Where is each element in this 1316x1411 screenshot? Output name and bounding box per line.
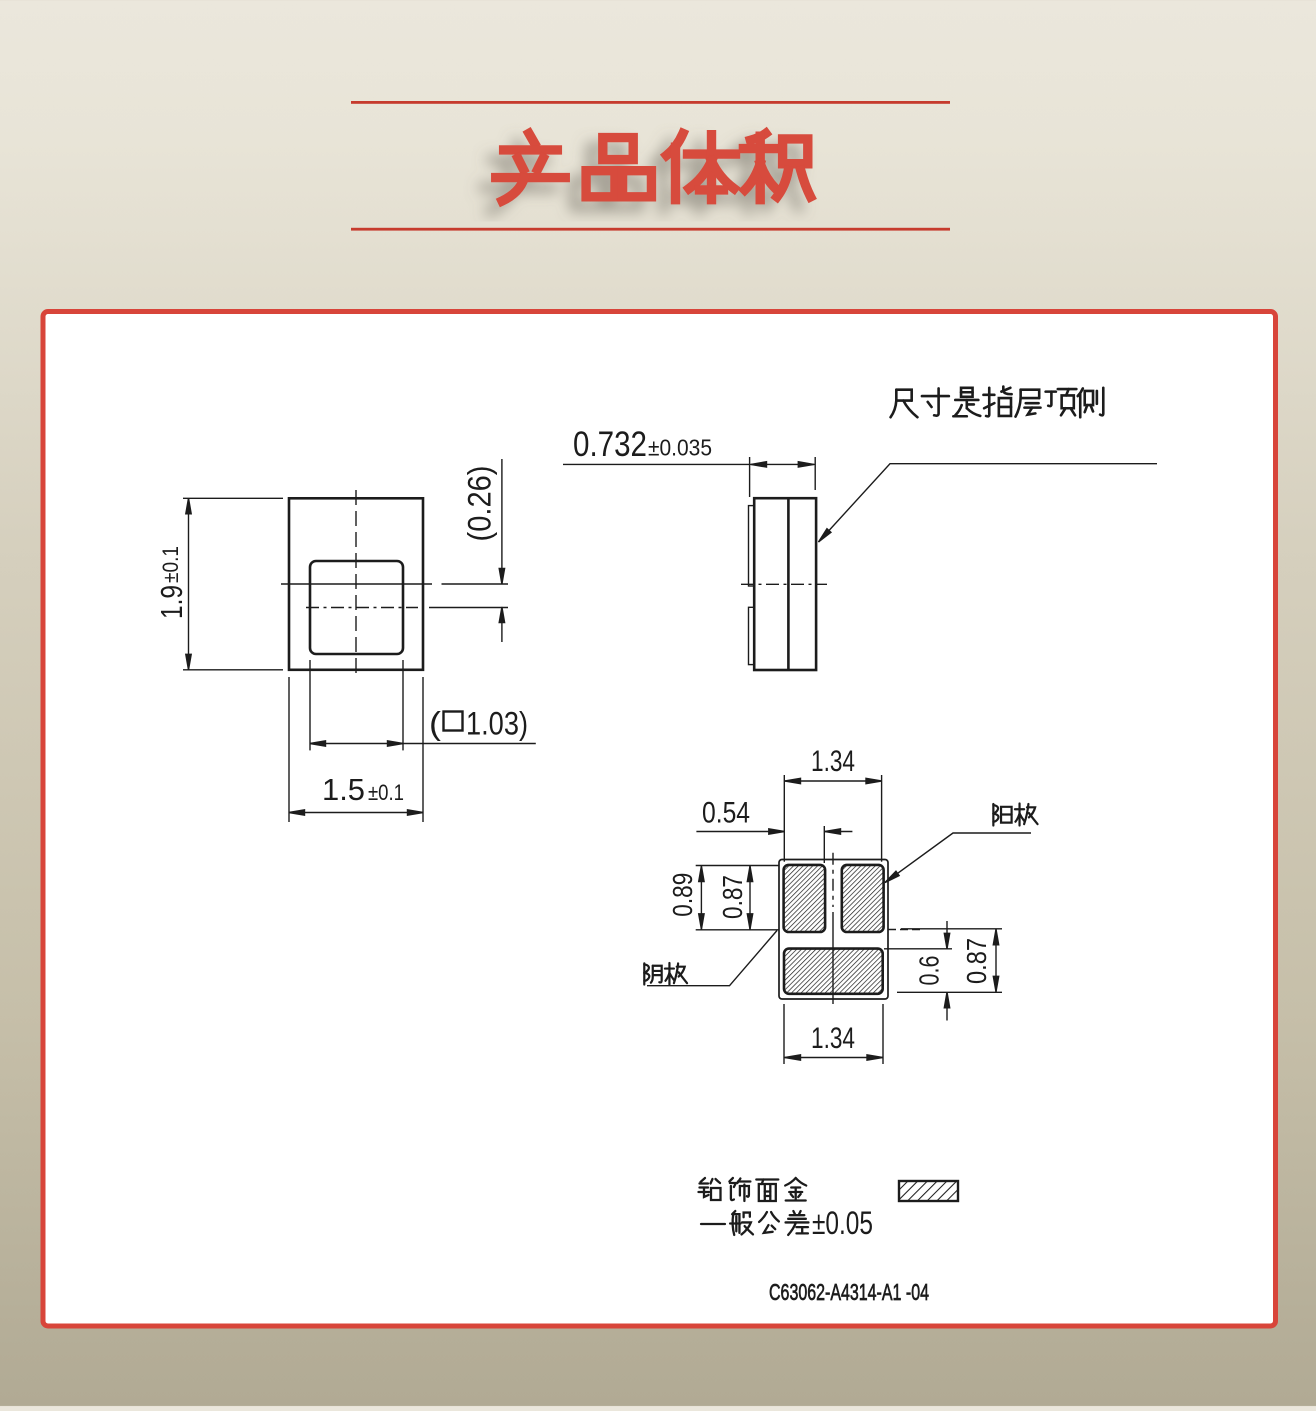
svg-text:1.03): 1.03) [466,706,528,742]
svg-text:1.5: 1.5 [322,772,365,807]
svg-text:1.9: 1.9 [154,585,189,619]
svg-text:±0.05: ±0.05 [812,1205,873,1241]
svg-text:C63062-A4314-A1 -04: C63062-A4314-A1 -04 [769,1279,929,1305]
svg-text:0.87: 0.87 [961,938,992,984]
svg-text:0.54: 0.54 [702,797,750,830]
svg-text:±0.1: ±0.1 [158,546,183,583]
svg-text:±0.1: ±0.1 [368,780,404,805]
svg-text:0.732: 0.732 [573,425,647,464]
svg-text:(0.26): (0.26) [462,466,498,542]
svg-text:1.34: 1.34 [811,1022,855,1055]
svg-text:0.89: 0.89 [667,873,698,917]
svg-text:0.6: 0.6 [914,956,945,986]
svg-text:0.87: 0.87 [717,875,748,919]
svg-text:(: ( [429,706,441,742]
svg-text:±0.035: ±0.035 [648,435,712,461]
svg-text:1.34: 1.34 [811,745,855,778]
